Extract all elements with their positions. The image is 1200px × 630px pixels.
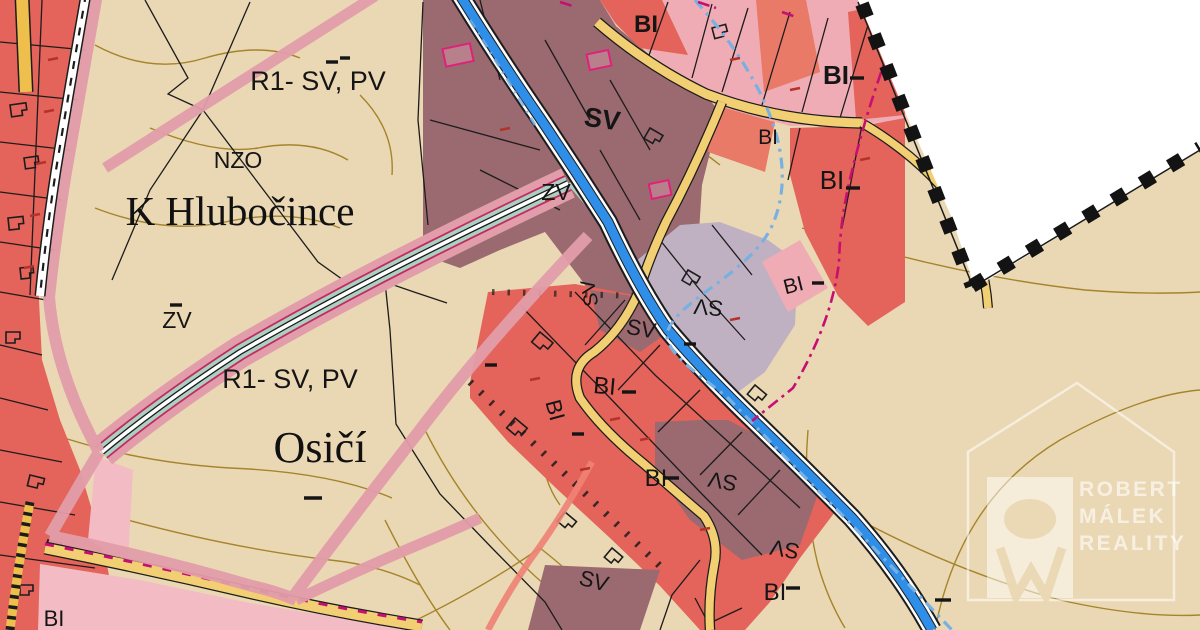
zoning-map-page: R1- SV, PVNZOK HlubočinceZVZVR1- SV, PVO… (0, 0, 1200, 630)
zone-label: SV (625, 314, 659, 344)
zone-label: NZO (214, 147, 263, 173)
zone-label: ZV (162, 307, 192, 333)
zoning-map: R1- SV, PVNZOK HlubočinceZVZVR1- SV, PVO… (0, 0, 1200, 630)
zone-label: R1- SV, PV (250, 66, 386, 96)
zone-label: BI (820, 165, 845, 195)
zone-label: BI (823, 60, 849, 90)
zone-label: K Hlubočince (126, 188, 355, 234)
zone-label: BI (634, 11, 658, 38)
zone-label: SV (582, 102, 622, 137)
zone-label: Osičí (274, 423, 367, 472)
zone-label: BI (764, 579, 787, 606)
zone-label: SV (706, 466, 740, 496)
zone-label: BI (758, 126, 778, 149)
zone-label: BI (592, 372, 617, 401)
zone-label: BI (645, 465, 668, 492)
zone-label: SV (768, 534, 802, 564)
zone-label: ZV (541, 179, 571, 205)
zone-label: BI (44, 606, 65, 630)
zone-label: SV (692, 294, 724, 321)
zone-label: R1- SV, PV (222, 364, 358, 394)
zone-label: SV (577, 277, 603, 308)
